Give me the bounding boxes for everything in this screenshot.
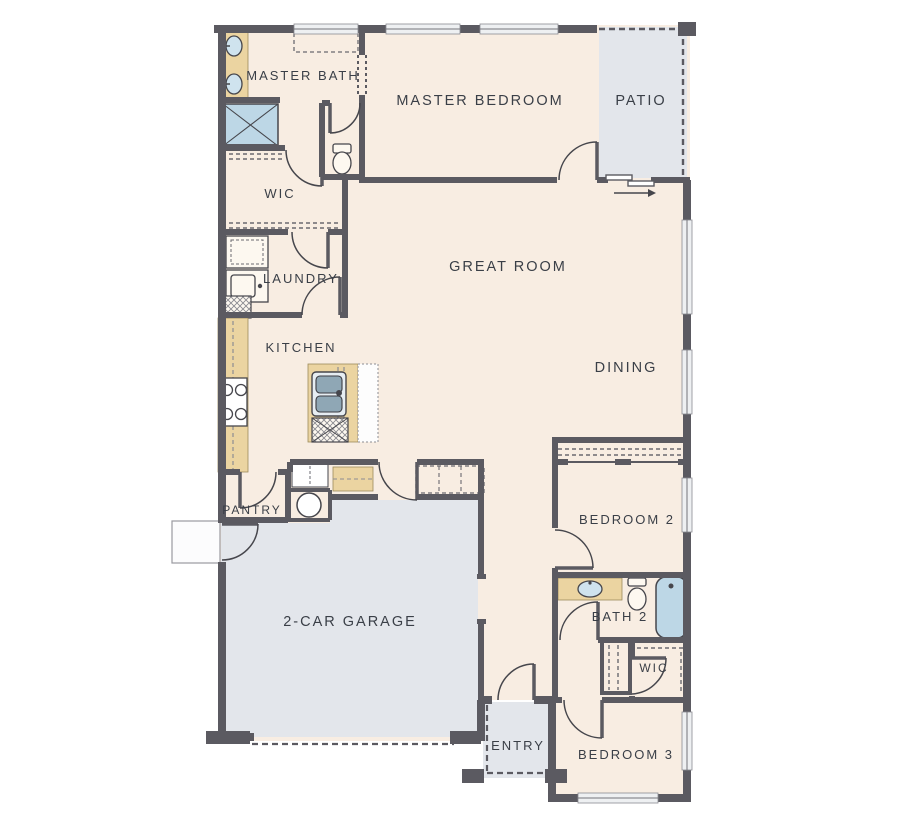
window — [682, 350, 692, 414]
patio-post — [678, 22, 696, 36]
room-label-kitchen: KITCHEN — [265, 340, 336, 355]
room-label-bath-2: BATH 2 — [592, 609, 649, 624]
window — [578, 793, 658, 803]
sink-icon — [225, 74, 242, 94]
room-label-master-bedroom: MASTER BEDROOM — [396, 93, 563, 109]
dishwasher-icon — [312, 418, 348, 442]
toilet-icon — [628, 578, 646, 610]
floor-plan: MASTER BATH MASTER BEDROOM PATIO WIC LAU… — [0, 0, 900, 830]
window — [682, 478, 692, 532]
shower-icon — [223, 104, 278, 148]
room-label-great-room: GREAT ROOM — [449, 259, 567, 275]
garage-post — [206, 731, 250, 744]
toilet-icon — [333, 144, 351, 174]
island-sink-icon — [312, 372, 346, 416]
room-label-pantry: PANTRY — [222, 503, 282, 517]
door-jamb — [477, 574, 486, 579]
room-label-dining: DINING — [595, 360, 658, 376]
room-label-laundry: LAUNDRY — [263, 271, 339, 286]
floor-plan-page: MASTER BATH MASTER BEDROOM PATIO WIC LAU… — [0, 0, 900, 830]
window — [682, 712, 692, 770]
entry-post — [462, 769, 484, 783]
garage-post — [450, 731, 481, 744]
water-heater-icon — [297, 493, 321, 517]
door-jamb — [477, 619, 486, 624]
mud-cabinet — [292, 464, 328, 487]
mud-bench — [333, 467, 373, 491]
window — [682, 220, 692, 314]
room-label-master-wic: WIC — [264, 186, 295, 201]
room-label-bedroom-2: BEDROOM 2 — [579, 512, 675, 527]
room-label-bedroom-3: BEDROOM 3 — [578, 747, 674, 762]
room-label-wic-2: WIC — [639, 661, 668, 675]
room-label-entry: ENTRY — [491, 738, 545, 753]
kitchen-island — [308, 364, 378, 442]
side-door-landing — [172, 521, 220, 563]
bath2-vanity — [558, 578, 622, 600]
window — [386, 24, 460, 34]
window — [294, 24, 358, 34]
sink-icon — [225, 36, 242, 56]
window — [480, 24, 558, 34]
bathtub-icon — [656, 577, 687, 638]
sink-icon — [578, 581, 602, 597]
entry-post — [545, 769, 567, 783]
room-label-patio: PATIO — [615, 93, 666, 109]
room-label-garage: 2-CAR GARAGE — [283, 614, 417, 630]
room-label-master-bath: MASTER BATH — [246, 68, 360, 83]
